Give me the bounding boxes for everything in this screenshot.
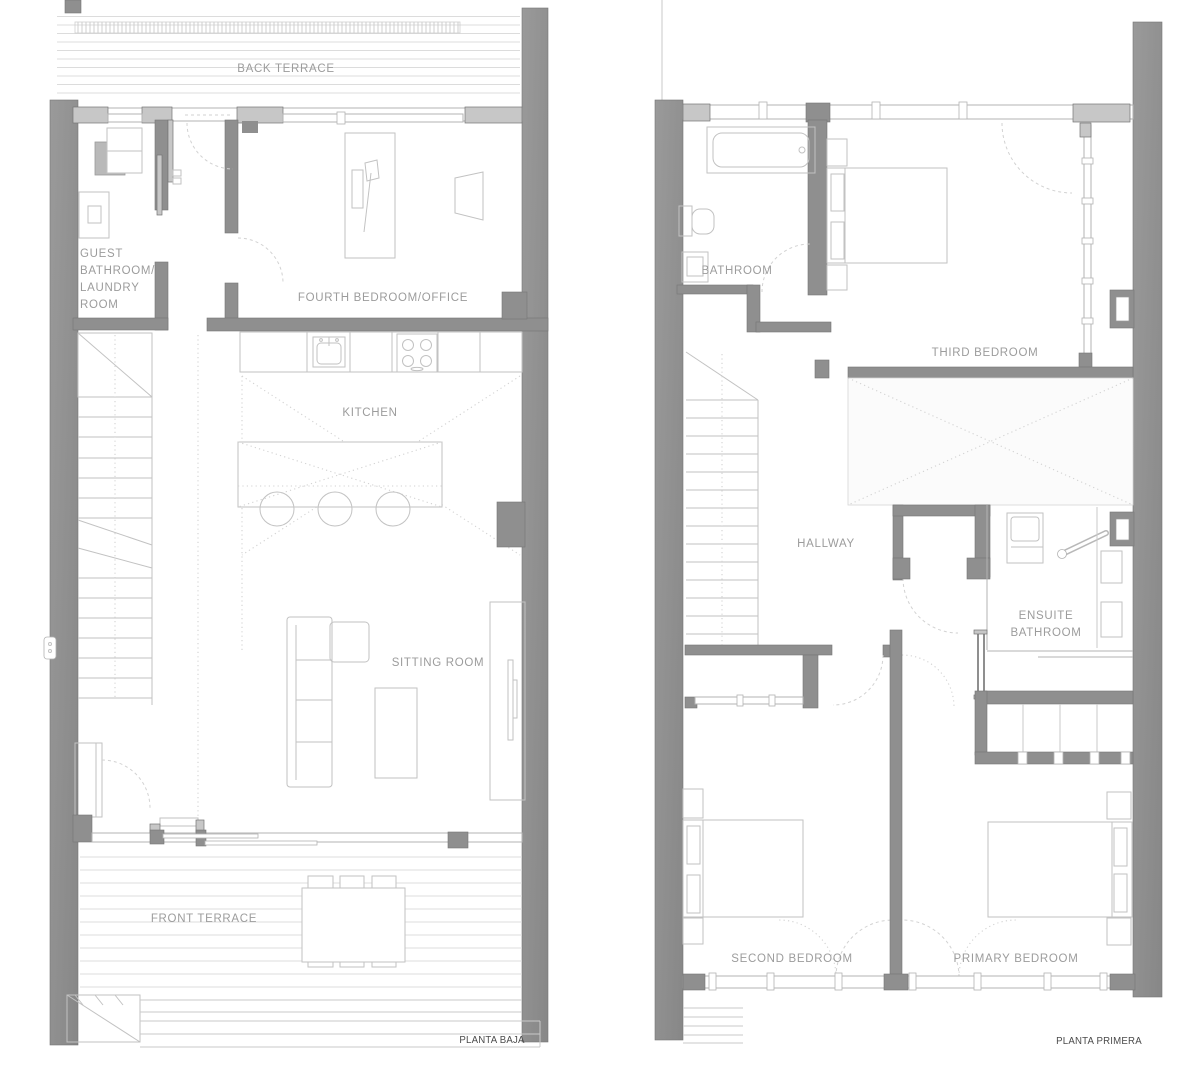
guest-bathroom-laundry: GUEST BATHROOM/ LAUNDRY ROOM xyxy=(73,120,181,330)
label-back-terrace: BACK TERRACE xyxy=(237,63,335,75)
desk-monitor xyxy=(352,170,363,208)
caption-planta-baja: PLANTA BAJA xyxy=(459,1035,524,1046)
kitchen: KITCHEN xyxy=(198,332,525,830)
kitchen-stove xyxy=(397,334,437,372)
svg-text:ROOM: ROOM xyxy=(80,299,119,311)
staircase-ground xyxy=(78,333,152,705)
front-terrace-decking xyxy=(80,850,522,995)
shower xyxy=(1007,513,1043,563)
fourth-bedroom-office: FOURTH BEDROOM/OFFICE xyxy=(187,120,548,331)
sliding-door-leaf xyxy=(157,155,162,215)
sliding-glass-door xyxy=(163,834,258,838)
bathtub xyxy=(707,127,815,173)
entry-fixture xyxy=(44,637,56,659)
door-mat xyxy=(160,818,198,826)
sliding-glass-door xyxy=(205,841,317,845)
stair-treads xyxy=(686,400,758,648)
ensuite-sink xyxy=(1101,551,1122,583)
sofa xyxy=(287,617,369,787)
label-bathroom: BATHROOM xyxy=(701,265,772,277)
svg-text:LAUNDRY: LAUNDRY xyxy=(80,282,140,294)
bed xyxy=(683,789,803,944)
label-kitchen: KITCHEN xyxy=(342,407,397,419)
bed xyxy=(988,792,1132,945)
sitting-room: SITTING ROOM xyxy=(287,602,525,800)
label-primary-bedroom: PRIMARY BEDROOM xyxy=(954,953,1079,965)
outdoor-dining-set xyxy=(302,876,405,967)
bathroom: BATHROOM xyxy=(677,120,831,378)
coffee-table xyxy=(375,688,417,778)
label-second-bedroom: SECOND BEDROOM xyxy=(731,953,852,965)
front-terrace: FRONT TERRACE xyxy=(67,850,540,1047)
ensuite-toilet xyxy=(1101,602,1122,637)
hallway: HALLWAY xyxy=(685,505,958,707)
void-rooflight xyxy=(848,378,1133,505)
staircase-first xyxy=(686,352,758,648)
label-ensuite: ENSUITE BATHROOM xyxy=(1010,610,1081,639)
kitchen-island xyxy=(238,442,442,507)
label-third-bedroom: THIRD BEDROOM xyxy=(932,347,1039,359)
label-hallway: HALLWAY xyxy=(797,538,855,550)
toilet xyxy=(79,192,109,238)
hall-cabinet xyxy=(75,743,102,817)
kitchen-sink xyxy=(313,337,345,367)
back-terrace-hatch-strip xyxy=(75,22,460,33)
ensuite-bathroom: ENSUITE BATHROOM xyxy=(974,505,1134,699)
floorplan-drawing: BACK TERRACE xyxy=(0,0,1200,1073)
desk-chair xyxy=(455,172,483,220)
first-floor-south-glazing xyxy=(683,973,1135,1043)
toilet xyxy=(679,206,714,236)
floorplan-sheet: BACK TERRACE xyxy=(0,0,1200,1073)
wardrobe xyxy=(975,691,1133,764)
label-front-terrace: FRONT TERRACE xyxy=(151,913,257,925)
sliding-door xyxy=(974,630,987,699)
label-sitting-room: SITTING ROOM xyxy=(392,657,485,669)
third-bedroom: THIRD BEDROOM xyxy=(827,123,1134,378)
exterior-steps xyxy=(683,1008,743,1043)
label-fourth-bedroom: FOURTH BEDROOM/OFFICE xyxy=(298,292,468,304)
chimney-block xyxy=(497,502,525,547)
caption-planta-primera: PLANTA PRIMERA xyxy=(1056,1036,1142,1047)
back-terrace: BACK TERRACE xyxy=(57,10,520,100)
svg-text:BATHROOM: BATHROOM xyxy=(1010,627,1081,639)
svg-text:GUEST: GUEST xyxy=(80,248,123,260)
nightstand xyxy=(827,265,847,290)
nightstand xyxy=(683,789,703,818)
primary-bedroom: PRIMARY BEDROOM xyxy=(902,691,1133,977)
door-leaf xyxy=(168,120,173,182)
nightstand xyxy=(1107,918,1131,945)
first-floor-plan: BATHROOM THI xyxy=(655,0,1162,1047)
second-bedroom: SECOND BEDROOM xyxy=(683,655,893,977)
svg-text:ENSUITE: ENSUITE xyxy=(1019,610,1074,622)
ground-floor-plan: BACK TERRACE xyxy=(44,0,548,1047)
label-guest-bathroom: GUEST BATHROOM/ LAUNDRY ROOM xyxy=(80,248,155,311)
hall-closet xyxy=(893,505,990,579)
svg-text:BATHROOM/: BATHROOM/ xyxy=(80,265,155,277)
nightstand xyxy=(1107,792,1131,819)
glass-door xyxy=(1058,533,1107,559)
nightstand xyxy=(827,139,847,166)
bed xyxy=(827,139,947,290)
tv-console xyxy=(490,602,525,800)
nightstand xyxy=(683,918,703,944)
south-glazing xyxy=(92,830,522,848)
bedroom-divider-wall xyxy=(890,630,902,977)
